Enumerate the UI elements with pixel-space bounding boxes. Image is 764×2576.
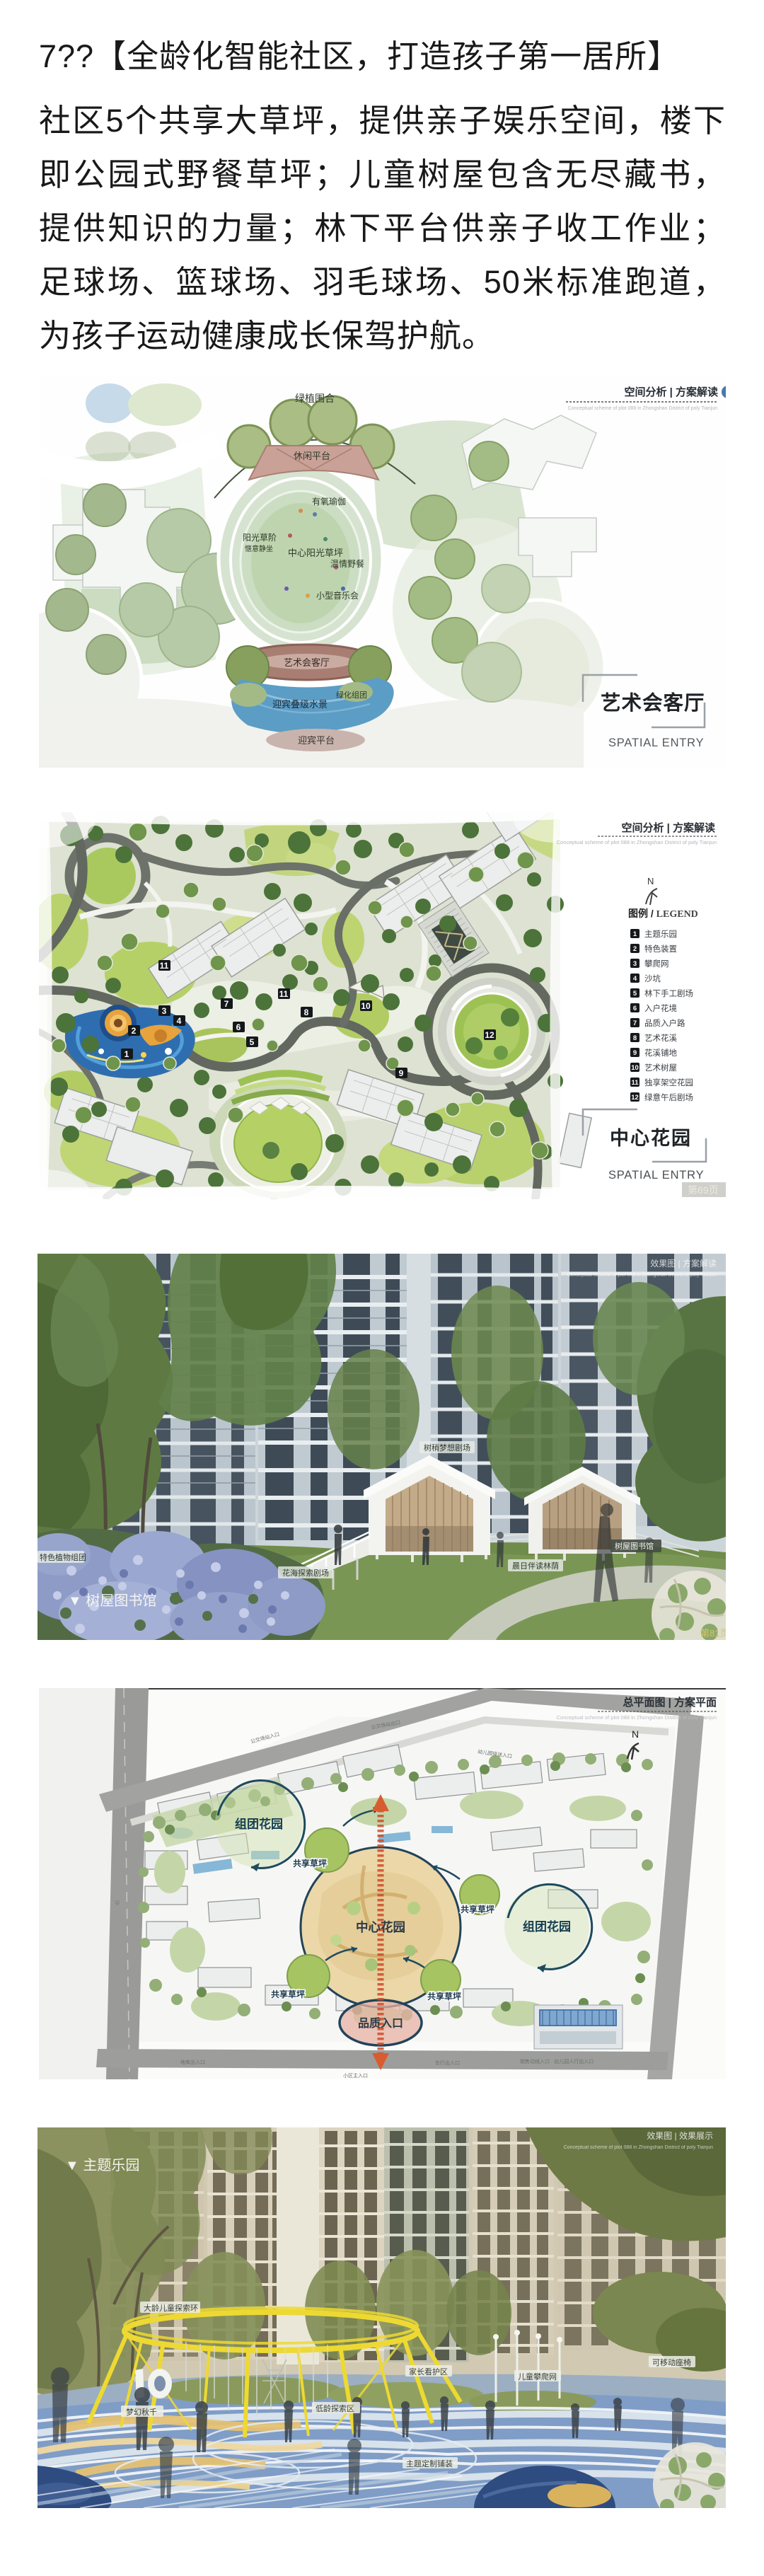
svg-text:1: 1 — [125, 1049, 129, 1059]
svg-text:10: 10 — [361, 1001, 371, 1011]
svg-text:第69页: 第69页 — [688, 1184, 719, 1196]
svg-text:效果图 | 方案解读: 效果图 | 方案解读 — [650, 1258, 717, 1269]
svg-text:小区主入口: 小区主入口 — [343, 2072, 368, 2079]
svg-text:11: 11 — [279, 989, 289, 999]
svg-text:有氧瑜伽: 有氧瑜伽 — [312, 496, 346, 507]
svg-text:中心花园: 中心花园 — [356, 1920, 405, 1934]
svg-text:入户花境: 入户花境 — [644, 1003, 677, 1013]
svg-text:休闲平台: 休闲平台 — [294, 451, 330, 461]
svg-text:6: 6 — [633, 1005, 637, 1012]
svg-text:4: 4 — [633, 975, 637, 983]
svg-text:空间分析 | 方案解读: 空间分析 | 方案解读 — [621, 821, 715, 834]
svg-text:12: 12 — [485, 1030, 494, 1040]
svg-text:艺术花溪: 艺术花溪 — [644, 1034, 677, 1043]
svg-text:独享架空花园: 独享架空花园 — [644, 1078, 693, 1087]
svg-text:艺术会客厅: 艺术会客厅 — [601, 691, 705, 715]
svg-text:小型音乐会: 小型音乐会 — [316, 590, 359, 601]
svg-text:中心阳光草坪: 中心阳光草坪 — [288, 548, 343, 558]
svg-text:Conceptual scheme of plot 088: Conceptual scheme of plot 088 in Zhongsh… — [567, 1273, 717, 1278]
svg-text:家长看护区: 家长看护区 — [409, 2367, 448, 2376]
svg-text:4: 4 — [177, 1016, 182, 1026]
svg-text:绿意午后剧场: 绿意午后剧场 — [644, 1092, 693, 1102]
svg-text:树屋图书馆: 树屋图书馆 — [615, 1541, 654, 1551]
svg-text:图例 / LEGEND: 图例 / LEGEND — [628, 908, 698, 920]
svg-text:7: 7 — [633, 1020, 637, 1027]
svg-text:绿植围合: 绿植围合 — [295, 393, 335, 404]
svg-text:10: 10 — [631, 1064, 639, 1072]
svg-text:11: 11 — [631, 1079, 639, 1087]
svg-text:8: 8 — [304, 1007, 309, 1017]
svg-text:Conceptual scheme of plot 088: Conceptual scheme of plot 088 in Zhongsh… — [557, 839, 717, 845]
svg-text:主题乐园: 主题乐园 — [644, 930, 677, 939]
svg-text:低龄探索区: 低龄探索区 — [316, 2403, 354, 2413]
svg-text:可移动座椅: 可移动座椅 — [652, 2357, 691, 2367]
svg-text:特色装置: 特色装置 — [644, 944, 677, 954]
svg-text:5: 5 — [250, 1037, 255, 1047]
svg-text:阳光草阶: 阳光草阶 — [243, 533, 277, 543]
svg-text:主题定制铺装: 主题定制铺装 — [406, 2459, 453, 2468]
svg-text:迎宾平台: 迎宾平台 — [298, 735, 335, 746]
svg-text:中心花园: 中心花园 — [610, 1128, 692, 1149]
svg-text:▼ 主题乐园: ▼ 主题乐园 — [65, 2157, 139, 2173]
svg-text:Conceptual scheme of plot 088: Conceptual scheme of plot 088 in Zhongsh… — [564, 2145, 713, 2150]
svg-text:攀爬网: 攀爬网 — [644, 959, 669, 969]
svg-text:大龄儿童探索环: 大龄儿童探索环 — [144, 2303, 198, 2313]
svg-text:空间分析 | 方案解读: 空间分析 | 方案解读 — [624, 386, 718, 398]
svg-text:9: 9 — [633, 1049, 637, 1057]
svg-text:SPATIAL ENTRY: SPATIAL ENTRY — [608, 737, 704, 749]
svg-text:组团花园: 组团花园 — [235, 1817, 283, 1831]
svg-text:2: 2 — [633, 945, 637, 953]
svg-text:效果图 | 效果展示: 效果图 | 效果展示 — [647, 2130, 713, 2141]
svg-text:艺术会客厅: 艺术会客厅 — [284, 657, 330, 668]
svg-text:1: 1 — [633, 930, 637, 938]
svg-text:5: 5 — [633, 990, 637, 998]
svg-text:品质入户路: 品质入户路 — [644, 1018, 685, 1028]
svg-text:3: 3 — [162, 1006, 167, 1016]
svg-text:共享草坪: 共享草坪 — [427, 1991, 461, 2002]
svg-text:Conceptual scheme of plot 088: Conceptual scheme of plot 088 in Zhongsh… — [557, 1714, 717, 1721]
svg-text:儿童攀爬网: 儿童攀爬网 — [518, 2372, 557, 2381]
svg-text:沙: 沙 — [114, 1900, 120, 1905]
svg-text:销售动线入口 · 幼儿园人行出入口: 销售动线入口 · 幼儿园人行出入口 — [520, 2058, 594, 2064]
svg-text:迎宾叠级水景: 迎宾叠级水景 — [272, 699, 328, 710]
svg-text:第81页: 第81页 — [700, 1628, 726, 1639]
svg-text:9: 9 — [399, 1068, 404, 1078]
svg-text:▼ 树屋图书馆: ▼ 树屋图书馆 — [68, 1593, 156, 1609]
svg-text:N: N — [647, 876, 654, 886]
svg-text:沙坑: 沙坑 — [644, 974, 661, 983]
svg-text:特色植物组团: 特色植物组团 — [40, 1552, 86, 1562]
svg-text:花海探索剧场: 花海探索剧场 — [282, 1568, 329, 1578]
svg-text:N: N — [632, 1728, 639, 1740]
svg-text:品质入口: 品质入口 — [358, 2016, 403, 2030]
svg-text:共享草坪: 共享草坪 — [293, 1858, 327, 1869]
svg-text:树稍梦想剧场: 树稍梦想剧场 — [424, 1443, 470, 1452]
svg-text:晨日伴读林荫: 晨日伴读林荫 — [512, 1561, 559, 1571]
svg-text:惬意静坐: 惬意静坐 — [245, 544, 273, 553]
svg-text:艺术树屋: 艺术树屋 — [644, 1063, 677, 1073]
svg-text:组团花园: 组团花园 — [523, 1919, 571, 1934]
svg-text:温情野餐: 温情野餐 — [330, 558, 364, 569]
svg-text:11: 11 — [160, 961, 169, 971]
svg-text:梦幻秋千: 梦幻秋千 — [126, 2407, 157, 2417]
svg-text:12: 12 — [631, 1094, 639, 1102]
svg-text:3: 3 — [633, 960, 637, 968]
svg-text:共享草坪: 共享草坪 — [461, 1904, 494, 1914]
svg-text:总平面图 | 方案平面: 总平面图 | 方案平面 — [623, 1696, 717, 1709]
svg-text:花溪铺地: 花溪铺地 — [644, 1049, 677, 1058]
svg-text:SPATIAL ENTRY: SPATIAL ENTRY — [608, 1169, 704, 1182]
svg-text:8: 8 — [633, 1034, 637, 1042]
svg-text:7: 7 — [224, 999, 229, 1009]
svg-text:2: 2 — [132, 1026, 137, 1036]
svg-text:6: 6 — [236, 1022, 241, 1032]
svg-text:Conceptual scheme of plot 088: Conceptual scheme of plot 088 in Zhongsh… — [568, 406, 717, 411]
svg-text:林下手工剧场: 林下手工剧场 — [644, 988, 693, 998]
svg-text:车行出入口: 车行出入口 — [435, 2060, 460, 2066]
svg-text:绿化组团: 绿化组团 — [336, 690, 367, 700]
svg-text:地库出入口: 地库出入口 — [180, 2059, 205, 2065]
svg-text:共享草坪: 共享草坪 — [271, 1989, 305, 1999]
